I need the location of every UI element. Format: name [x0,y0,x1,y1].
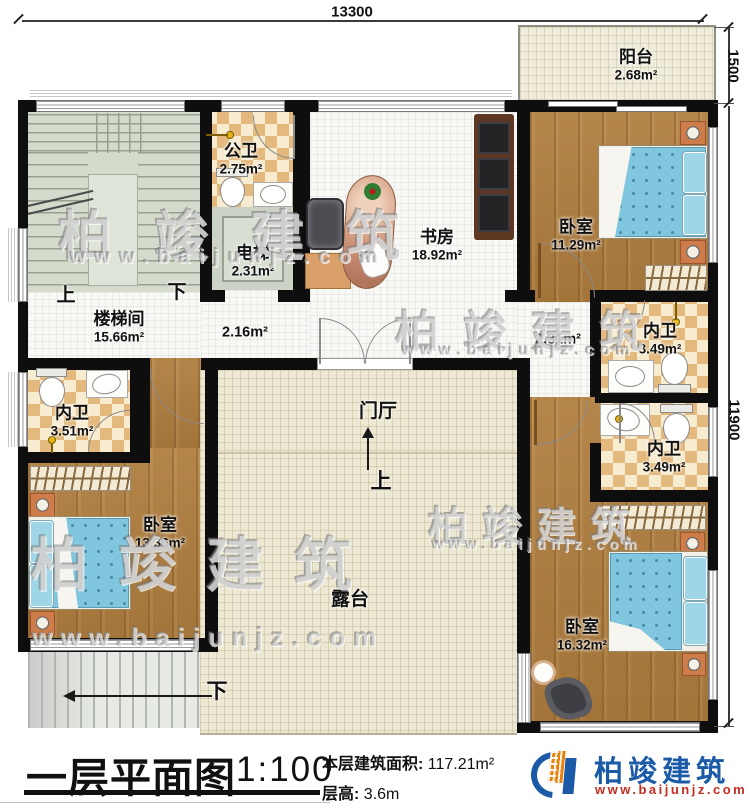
dim-tick [13,14,24,25]
watermark-url: www.baijunjz.com [70,246,387,269]
west-sill-2 [8,372,18,447]
publicbath-fitting-line [206,134,228,136]
title-underline [24,790,320,795]
dim-top-value: 13300 [331,4,373,21]
window-study-north [318,100,505,112]
sofa-cushion-1 [478,122,510,154]
room-label-public-bath: 公卫 2.75m² [220,141,263,176]
window-stairwell-north [36,100,185,112]
dim-tick [697,14,708,25]
window-bedroomBR-south [540,722,700,732]
sofa-cushion-3 [478,194,510,232]
floor-area-label: 本层建筑面积: [322,756,423,773]
wall-study-bedroom [517,100,530,302]
plan-title: 一层平面图 [26,744,236,804]
west-sill-1 [8,228,18,302]
balcony-sliding-door-left [548,101,618,107]
bathTR-toilet-tank [658,384,691,393]
room-label-foyer: 门厅 [359,401,397,423]
nightstand [680,121,706,145]
wall-elevator-south-b [278,290,310,302]
window-bedroomBR-west [517,653,531,723]
exterior-down-arrowhead-icon [63,690,75,702]
window-publicbath-north [221,100,285,112]
floor-plan-canvas: 阳台 2.68m² 公卫 2.75m² 电梯 2.31m² 书房 18.92m²… [0,0,750,811]
wall-foyer-north-a [201,358,317,370]
room-label-bath-br: 内卫 3.49m² [643,439,686,474]
room-label-balcony: 阳台 2.68m² [615,47,658,82]
north-window-sill [30,90,512,99]
room-label-stair-hall: 楼梯间 15.66m² [94,309,145,344]
room-label-bedroom-tr: 卧室 11.29m² [551,217,601,252]
dim-ext [714,27,734,28]
bathTR-shower-line [675,302,677,320]
foyer-up-arrowhead-icon [362,427,374,438]
pillow [683,195,706,235]
title-thin-line [0,802,330,803]
window-bedroomBR-east [708,570,718,700]
stair-flight-top-dividers [96,113,144,153]
foyer-up-label: 上 [371,470,392,494]
nightstand [682,653,706,676]
wall-bathL-east [130,358,150,458]
wall-elevator-south-a [200,290,225,302]
pillow [684,602,707,645]
door-leaf-bedroomTR [538,243,541,298]
floor-area-row: 本层建筑面积: 117.21m² [322,750,494,774]
foyer-step-line [213,452,517,454]
sofa-cushion-2 [478,158,510,190]
balcony-sliding-door-right [616,106,687,112]
stair-up-label: 上 [56,285,75,307]
bathTR-sink [615,366,645,387]
nightstand [30,493,55,517]
room-label-hall-center: 2.16m² [222,325,268,342]
wall-baths-divider [595,393,708,403]
bathBR-toilet-tank [660,404,693,413]
window-bedroomTR-east [708,127,718,263]
foyer-up-arrow [367,437,369,470]
door-leaf-foyer-left [319,318,321,364]
logo-website: www.baijunjz.com [595,782,747,797]
watermark-url: www.baijunjz.com [432,536,641,553]
dim-main-value: 11900 [726,400,743,441]
logo-building-blue-icon [562,758,576,794]
window-stairwell-west [18,228,28,302]
exterior-down-arrow [74,695,212,697]
floor-area-value: 117.21m² [428,756,494,773]
window-bathL-west [18,372,28,447]
floor-height-label: 层高: [322,786,359,803]
dim-ext [714,103,734,104]
wall-bathL-south [28,452,150,463]
watermark-url: www.baijunjz.com [32,622,384,653]
watermark-text: 柏竣建筑 [30,518,382,602]
wall-terrace-west [205,358,218,652]
door-leaf-bedroomBR [534,400,537,445]
window-bathBR-east [708,407,718,477]
plan-scale: 1:100 [236,750,334,790]
pillow [683,152,706,193]
wardrobe-bl [30,466,131,491]
wardrobe-tr [645,265,707,291]
dim-balcony-value: 1500 [725,49,742,82]
nightstand [680,240,706,264]
room-label-bath-left: 内卫 3.51m² [51,403,94,438]
exterior-stairs [28,652,200,728]
pillow [684,557,707,600]
stair-down-label: 下 [167,282,186,304]
bathL-toilet-tank [36,368,67,377]
room-label-bedroom-br: 卧室 16.32m² [557,617,607,652]
bathL-shower-line [51,444,53,453]
watermark-url: www.baijunjz.com [402,342,636,360]
exterior-down-label: 下 [207,680,228,704]
door-leaf-bathBR [619,403,621,443]
floor-height-value: 3.6m [364,786,400,803]
door-leaf-publicbath [293,115,295,159]
floor-height-row: 层高: 3.6m [322,780,399,804]
